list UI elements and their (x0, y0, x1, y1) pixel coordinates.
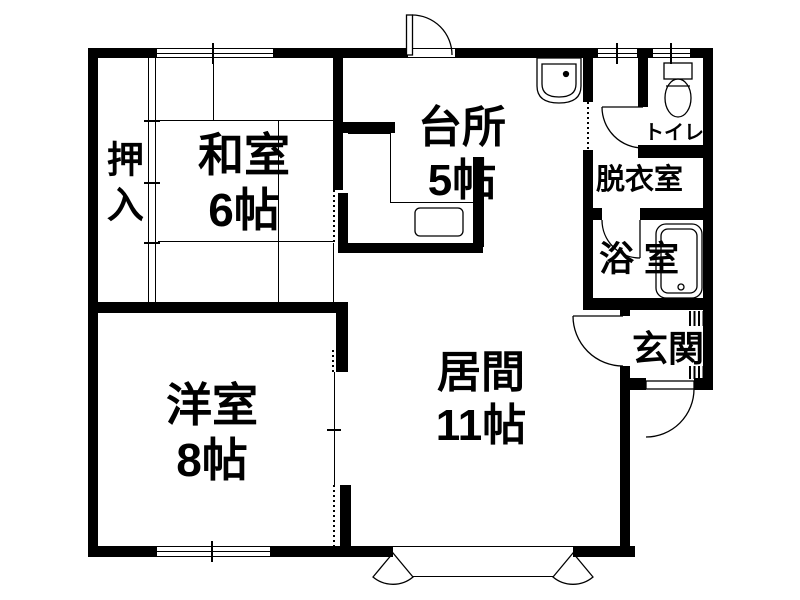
room-label-text: 居間 (437, 348, 525, 397)
toilet-door-arc (602, 107, 643, 148)
room-label-text: 玄関 (632, 328, 704, 369)
room-label-text: 浴室 (599, 240, 689, 279)
room-label-text: 押入 (101, 140, 142, 230)
room-label-text: 脱衣室 (596, 164, 683, 196)
kitchen-backdoor-leaf (407, 15, 413, 55)
room-label-genkan: 玄関 (632, 327, 704, 370)
stove-icon (415, 208, 463, 236)
room-label-kitchen: 台所5帖 (384, 102, 540, 208)
terrace-door-fan-right (553, 553, 593, 584)
room-size-text: 11帖 (436, 401, 527, 450)
room-size-text: 5帖 (428, 156, 496, 205)
room-label-dressing: 脱衣室 (596, 163, 683, 198)
room-label-text: 和室 (198, 129, 290, 181)
bathtub-drain (678, 284, 684, 290)
room-size-text: 6帖 (208, 184, 280, 236)
sink-icon (537, 58, 581, 103)
genkan-door-arc (573, 316, 623, 366)
terrace-door-fan-left (373, 553, 413, 584)
room-size-text: 8帖 (176, 434, 248, 486)
fixtures-layer (0, 0, 800, 600)
toilet-tank (664, 63, 692, 79)
faucet-icon (564, 72, 569, 77)
entrance-door-arc (646, 389, 694, 437)
room-label-western: 洋室8帖 (134, 378, 290, 488)
floor-plan: 押入 和室6帖 台所5帖 トイレ 脱衣室 浴室 玄関 居間11帖 洋室8帖 (0, 0, 800, 600)
room-label-living: 居間11帖 (403, 347, 559, 453)
room-label-oshiire: 押入 (99, 140, 143, 230)
room-label-washitsu: 和室6帖 (166, 128, 322, 238)
room-label-text: トイレ (644, 122, 704, 144)
sink-basin (542, 64, 576, 97)
entrance-door-leaf (646, 381, 694, 389)
room-label-text: 台所 (418, 103, 506, 152)
room-label-bath: 浴室 (599, 239, 689, 281)
toilet-bowl-icon (665, 79, 691, 117)
room-label-toilet: トイレ (644, 121, 704, 145)
kitchen-backdoor-arc (412, 15, 452, 55)
room-label-text: 洋室 (166, 379, 258, 431)
